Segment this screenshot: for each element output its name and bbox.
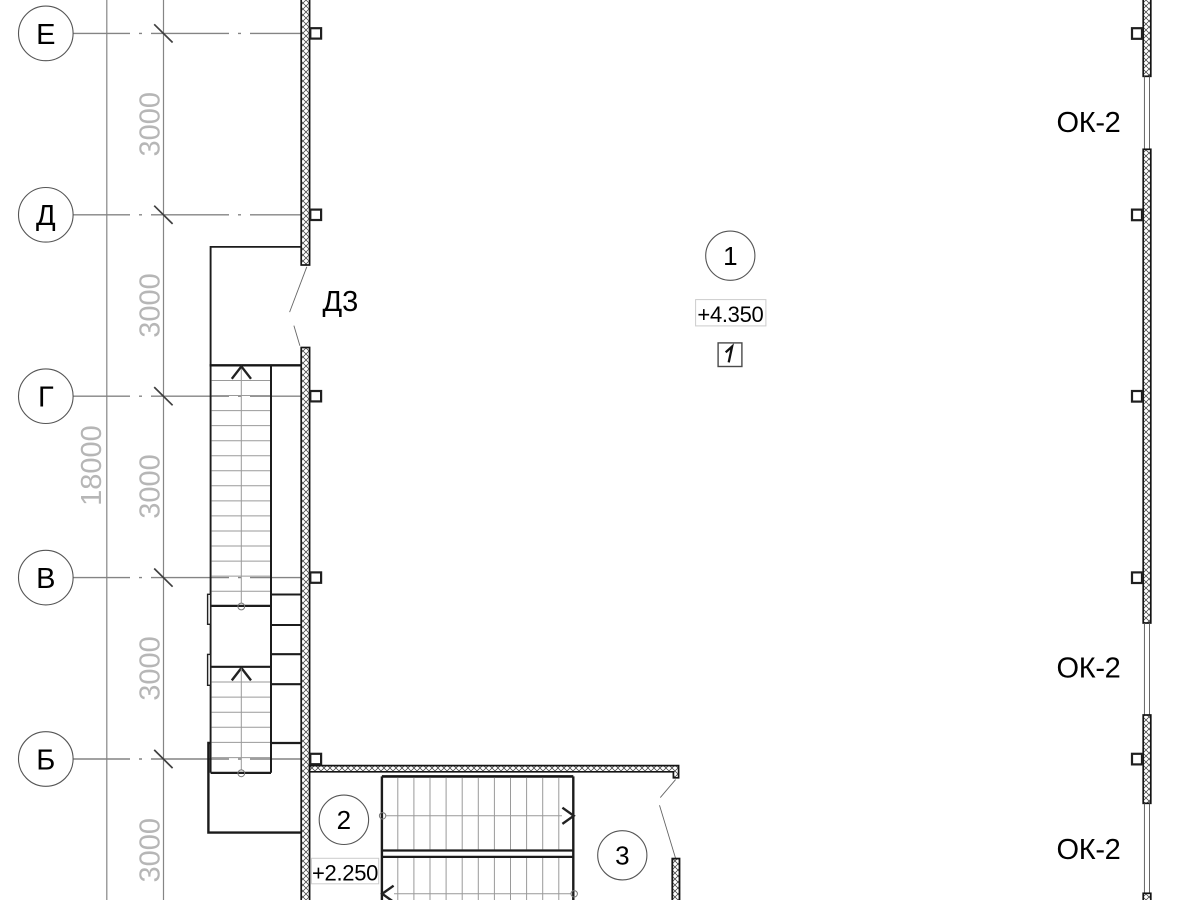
- svg-text:ОК-2: ОК-2: [1056, 834, 1120, 866]
- svg-text:Г: Г: [38, 382, 54, 414]
- svg-text:В: В: [36, 563, 55, 595]
- svg-text:3000: 3000: [134, 454, 166, 519]
- svg-text:3: 3: [615, 841, 629, 871]
- svg-text:1: 1: [723, 241, 737, 271]
- svg-text:3000: 3000: [134, 92, 166, 157]
- svg-text:3000: 3000: [134, 636, 166, 701]
- svg-text:Е: Е: [36, 19, 55, 51]
- svg-text:18000: 18000: [76, 425, 108, 506]
- svg-text:ОК-2: ОК-2: [1056, 653, 1120, 685]
- svg-text:+4.350: +4.350: [697, 302, 763, 327]
- svg-text:Д: Д: [36, 200, 56, 232]
- svg-text:3000: 3000: [134, 818, 166, 883]
- svg-text:2: 2: [337, 805, 351, 835]
- svg-text:ОК-2: ОК-2: [1056, 107, 1120, 139]
- svg-text:3000: 3000: [134, 273, 166, 338]
- svg-text:Б: Б: [36, 744, 55, 776]
- svg-text:+2.250: +2.250: [312, 860, 378, 885]
- svg-text:Д3: Д3: [323, 286, 359, 318]
